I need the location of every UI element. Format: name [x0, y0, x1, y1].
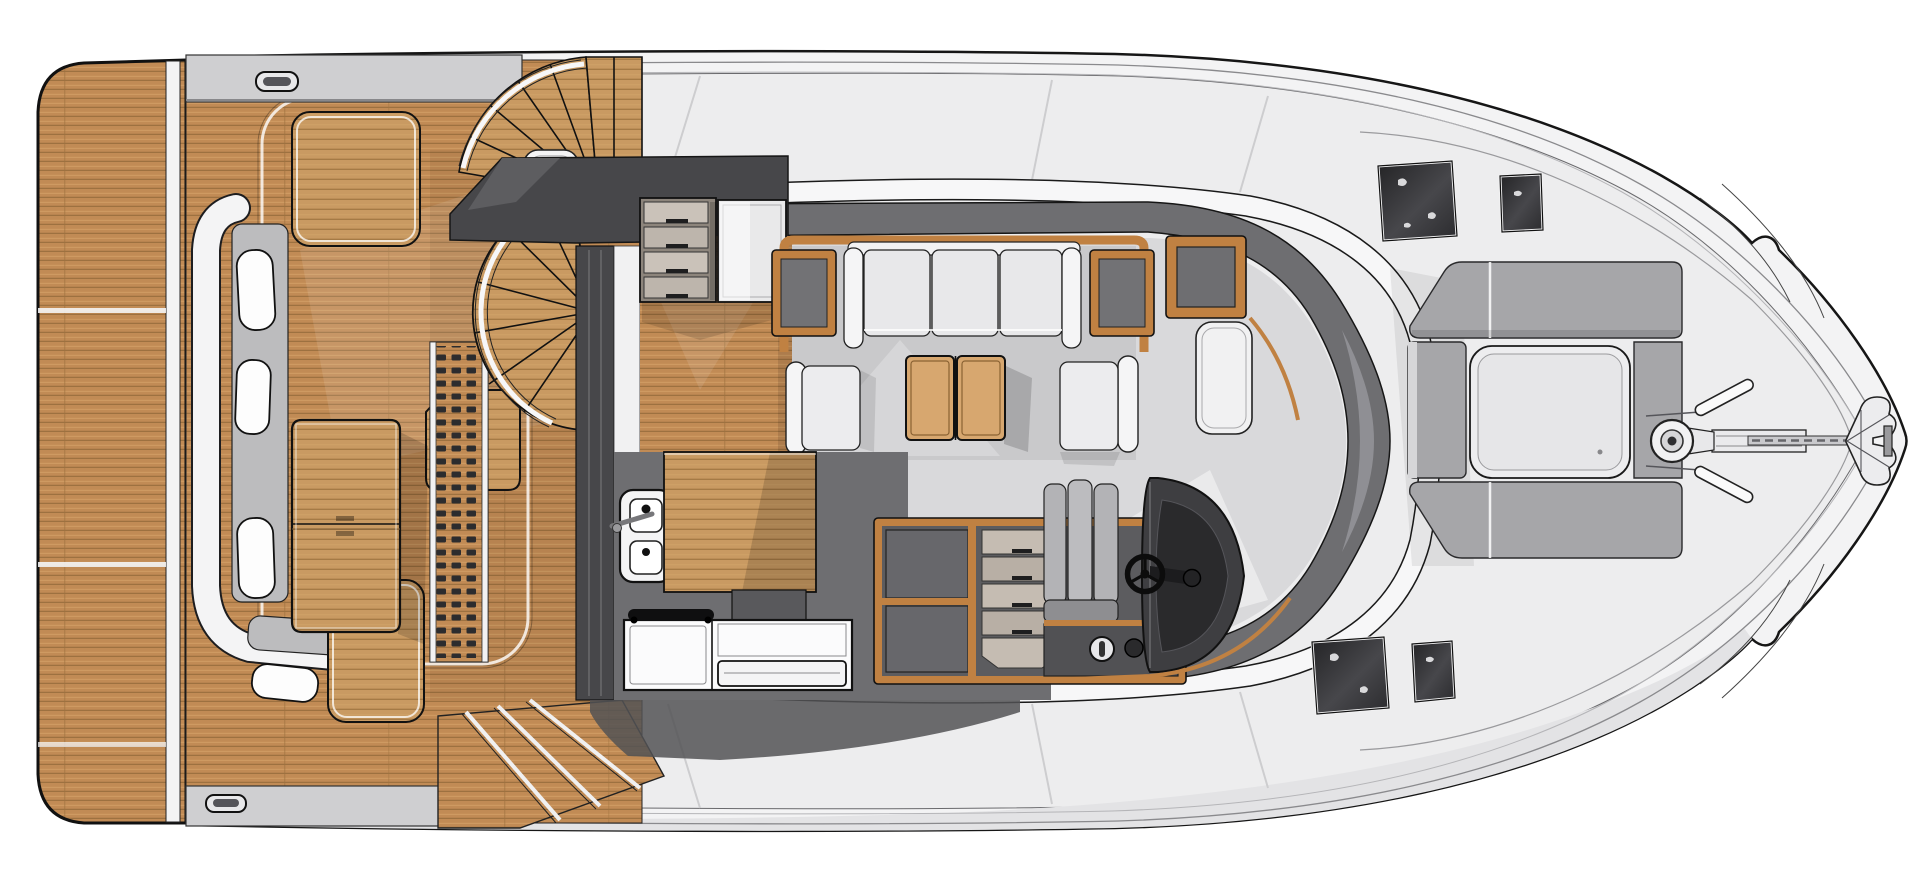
armchair-port — [786, 362, 876, 454]
galley-drawer-cabinet — [640, 198, 716, 302]
forward-cabinet — [1196, 322, 1252, 434]
deck-hatch — [1378, 161, 1457, 241]
coffee-table-shadow — [1004, 366, 1032, 452]
sofa-armrest — [844, 248, 863, 348]
sofa-cushion — [932, 250, 998, 336]
boarding-strip-bottom — [186, 786, 472, 826]
sun-pad-forward — [1410, 262, 1682, 338]
sofa-cushion — [864, 250, 930, 336]
coffee-table — [906, 356, 1032, 452]
sofa-side-table — [772, 250, 836, 336]
sofa-side-table — [1090, 250, 1154, 336]
deck-grating — [430, 342, 488, 662]
floorplan-drawing — [0, 0, 1920, 886]
console-knob-icon — [1125, 639, 1143, 657]
deck-hatch — [1412, 641, 1455, 702]
galley-counter — [664, 452, 816, 592]
swim-platform — [38, 60, 186, 823]
deck-hatch — [1312, 637, 1389, 714]
sofa — [844, 242, 1081, 348]
cockpit-table — [292, 420, 428, 644]
grab-rail-icon — [628, 609, 714, 621]
helm-seat — [1044, 480, 1118, 622]
armchair-starboard — [1060, 356, 1138, 466]
swim-platform-teak — [38, 60, 186, 823]
table-shadow — [398, 432, 428, 644]
nav-corner-cabinet — [1166, 236, 1246, 318]
anchor-chain — [1748, 436, 1854, 445]
table-top — [292, 420, 400, 632]
helm-cabinets — [882, 526, 976, 676]
skylight-hatch — [1470, 346, 1630, 478]
yacht-floorplan — [0, 0, 1920, 886]
galley-sink — [612, 490, 672, 582]
swim-platform-seam — [166, 61, 180, 822]
cockpit-seat-module-aft — [292, 112, 420, 246]
deck-hatch — [1500, 174, 1543, 232]
sun-pad-aft — [1410, 482, 1682, 558]
sofa-armrest — [1062, 248, 1081, 348]
boarding-strip-top — [186, 55, 522, 102]
sofa-cushion — [1000, 250, 1062, 336]
